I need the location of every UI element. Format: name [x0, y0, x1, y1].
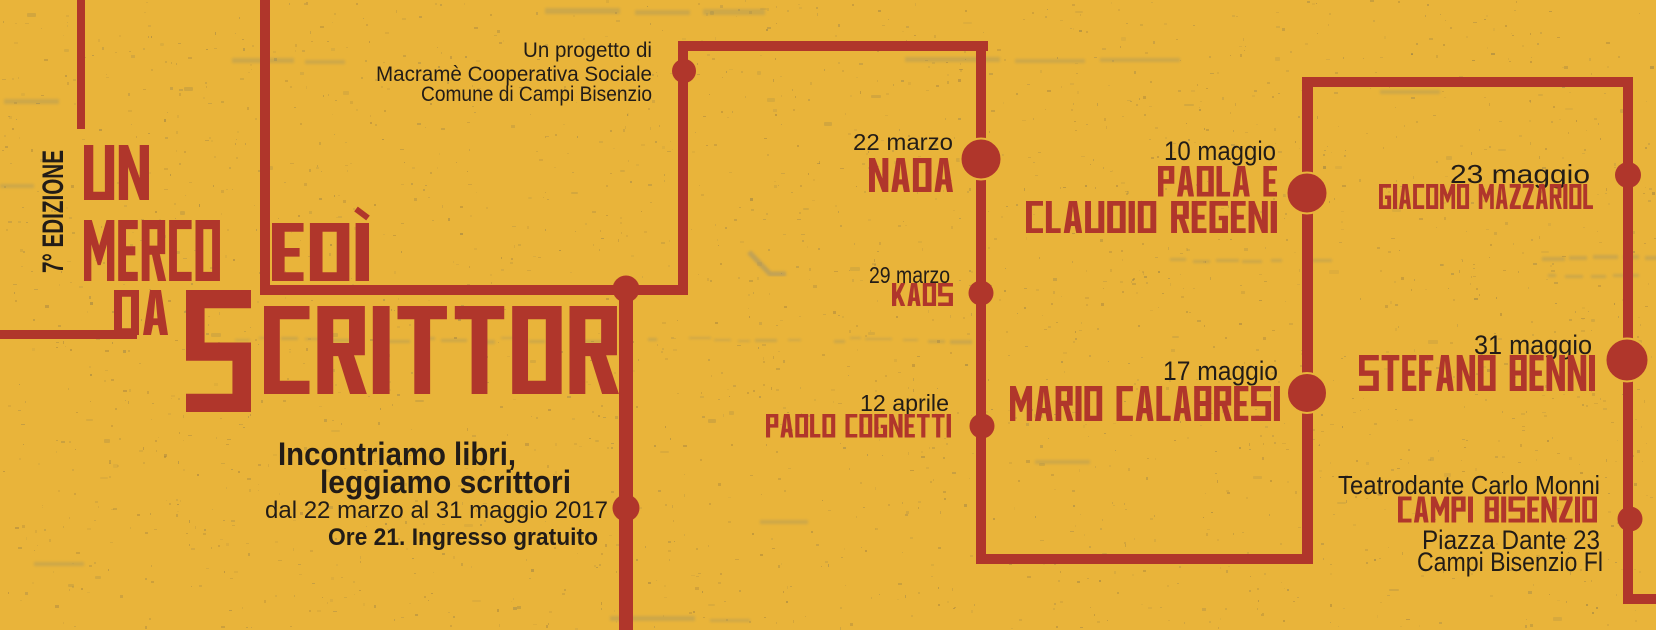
svg-text:Comune di Campi Bisenzio: Comune di Campi Bisenzio	[421, 83, 652, 106]
svg-text:12 aprile: 12 aprile	[860, 390, 949, 416]
svg-text:29 marzo: 29 marzo	[869, 262, 950, 288]
svg-text:leggiamo scrittori: leggiamo scrittori	[320, 464, 571, 500]
svg-text:Teatrodante Carlo Monni: Teatrodante Carlo Monni	[1338, 470, 1600, 500]
svg-text:7° EDIZIONE: 7° EDIZIONE	[37, 150, 70, 273]
svg-text:10 maggio: 10 maggio	[1164, 136, 1276, 166]
svg-text:22 marzo: 22 marzo	[853, 129, 953, 155]
svg-text:Campi Bisenzio Fl: Campi Bisenzio Fl	[1417, 547, 1603, 577]
svg-text:Un progetto di: Un progetto di	[523, 39, 652, 62]
svg-text:dal 22 marzo al 31 maggio 2017: dal 22 marzo al 31 maggio 2017	[265, 497, 608, 524]
svg-text:17 maggio: 17 maggio	[1163, 356, 1278, 386]
svg-text:Ore 21. Ingresso gratuito: Ore 21. Ingresso gratuito	[328, 524, 598, 551]
